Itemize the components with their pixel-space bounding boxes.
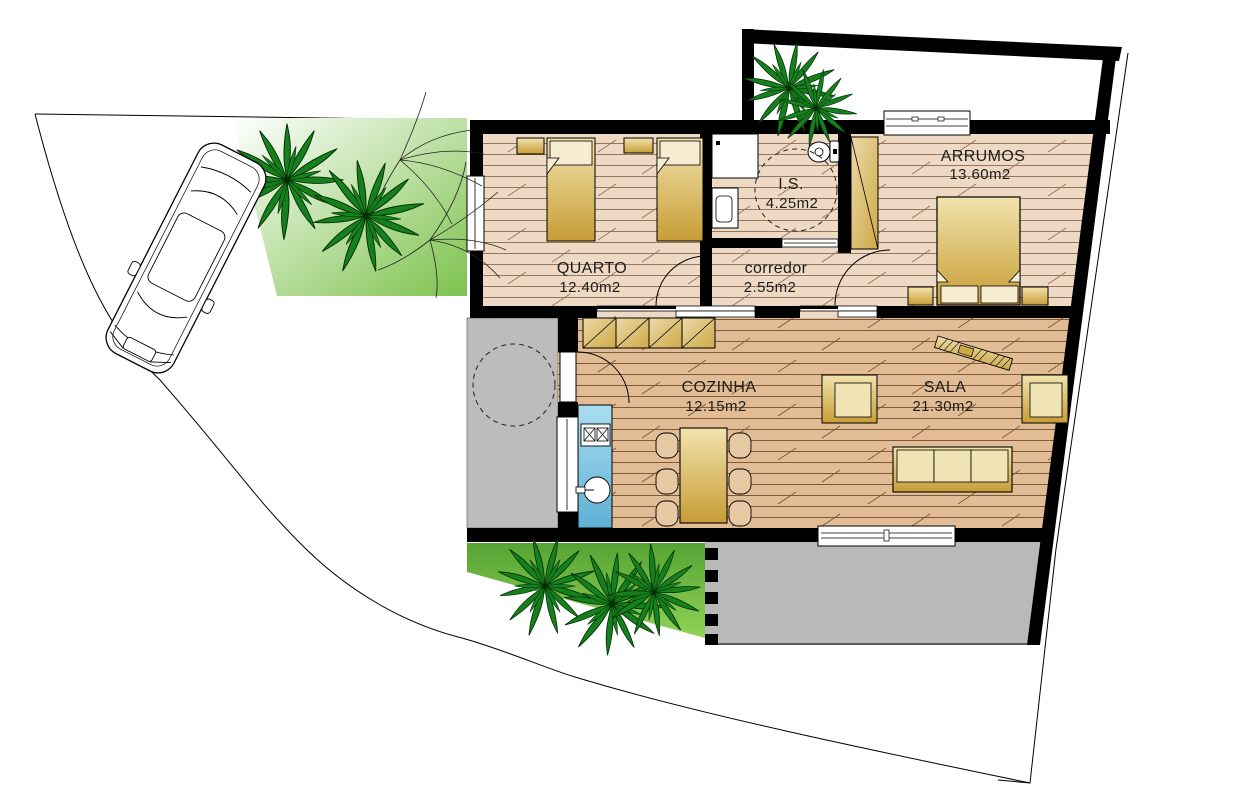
armchair: [822, 375, 877, 423]
area-quarto: 12.40m2: [559, 279, 620, 296]
area-arrumos: 13.60m2: [949, 166, 1010, 183]
floor-plan-canvas: QUARTO 12.40m2 I.S. 4.25m2 corredor 2.55…: [0, 0, 1257, 793]
single-bed: [657, 138, 703, 241]
sofa: [893, 447, 1012, 492]
pocket-door-bathroom: [782, 239, 838, 247]
single-bed: [547, 138, 595, 241]
mid-wall-2: [755, 306, 800, 318]
floor-living-strip: [558, 318, 1070, 528]
bathroom-east-wall: [838, 134, 851, 253]
kitchen-west-wall-c: [558, 512, 578, 528]
courtyard-left-wall: [742, 29, 754, 124]
window-left: [467, 176, 484, 251]
floor-plan-page: QUARTO 12.40m2 I.S. 4.25m2 corredor 2.55…: [0, 0, 1257, 793]
courtyard-top-wall: [742, 29, 1122, 61]
label-corredor: corredor: [745, 260, 808, 277]
car: [92, 133, 280, 383]
toilet: [808, 141, 839, 162]
window-kitchen-west: [557, 417, 578, 512]
chair: [656, 469, 678, 494]
nightstand: [517, 138, 544, 154]
window-top: [884, 111, 970, 135]
label-sala: SALA: [924, 379, 967, 396]
bottom-wall-left: [467, 528, 818, 542]
mid-wall-3: [877, 306, 1071, 318]
glass-sliding-door-sala: [818, 526, 955, 546]
label-quarto: QUARTO: [557, 260, 627, 277]
kitchen-counter: [576, 405, 612, 528]
bathroom-south-wall: [712, 238, 782, 248]
chair: [656, 433, 678, 458]
upper-cabinets: [583, 318, 715, 348]
bottom-wall-right: [955, 528, 1050, 542]
top-wall-right: [969, 120, 1110, 134]
mid-wall-1: [470, 306, 597, 318]
area-corredor: 2.55m2: [744, 279, 796, 296]
washbasin: [712, 188, 738, 228]
kitchen-west-wall-b: [558, 402, 578, 417]
nightstand: [1022, 287, 1048, 305]
chair: [729, 469, 751, 494]
label-is: I.S.: [778, 176, 804, 193]
double-bed: [937, 197, 1020, 305]
entrance-patio: [467, 318, 558, 528]
kitchen-west-wall-a: [558, 318, 578, 352]
label-cozinha: COZINHA: [682, 379, 757, 396]
area-is: 4.25m2: [766, 195, 818, 212]
area-cozinha: 12.15m2: [685, 398, 746, 415]
area-sala: 21.30m2: [912, 398, 973, 415]
chair: [729, 433, 751, 458]
dining-set: [656, 428, 751, 526]
shower: [712, 134, 758, 178]
left-wall-upper: [470, 120, 483, 177]
chair: [656, 501, 678, 526]
stove: [581, 424, 610, 446]
nightstand: [908, 287, 933, 305]
wardrobe: [851, 137, 878, 249]
armchair: [1022, 375, 1068, 423]
label-arrumos: ARRUMOS: [941, 148, 1026, 165]
dining-table: [680, 428, 727, 523]
chair: [729, 501, 751, 526]
terrace: [705, 542, 1046, 645]
nightstand: [624, 138, 653, 153]
